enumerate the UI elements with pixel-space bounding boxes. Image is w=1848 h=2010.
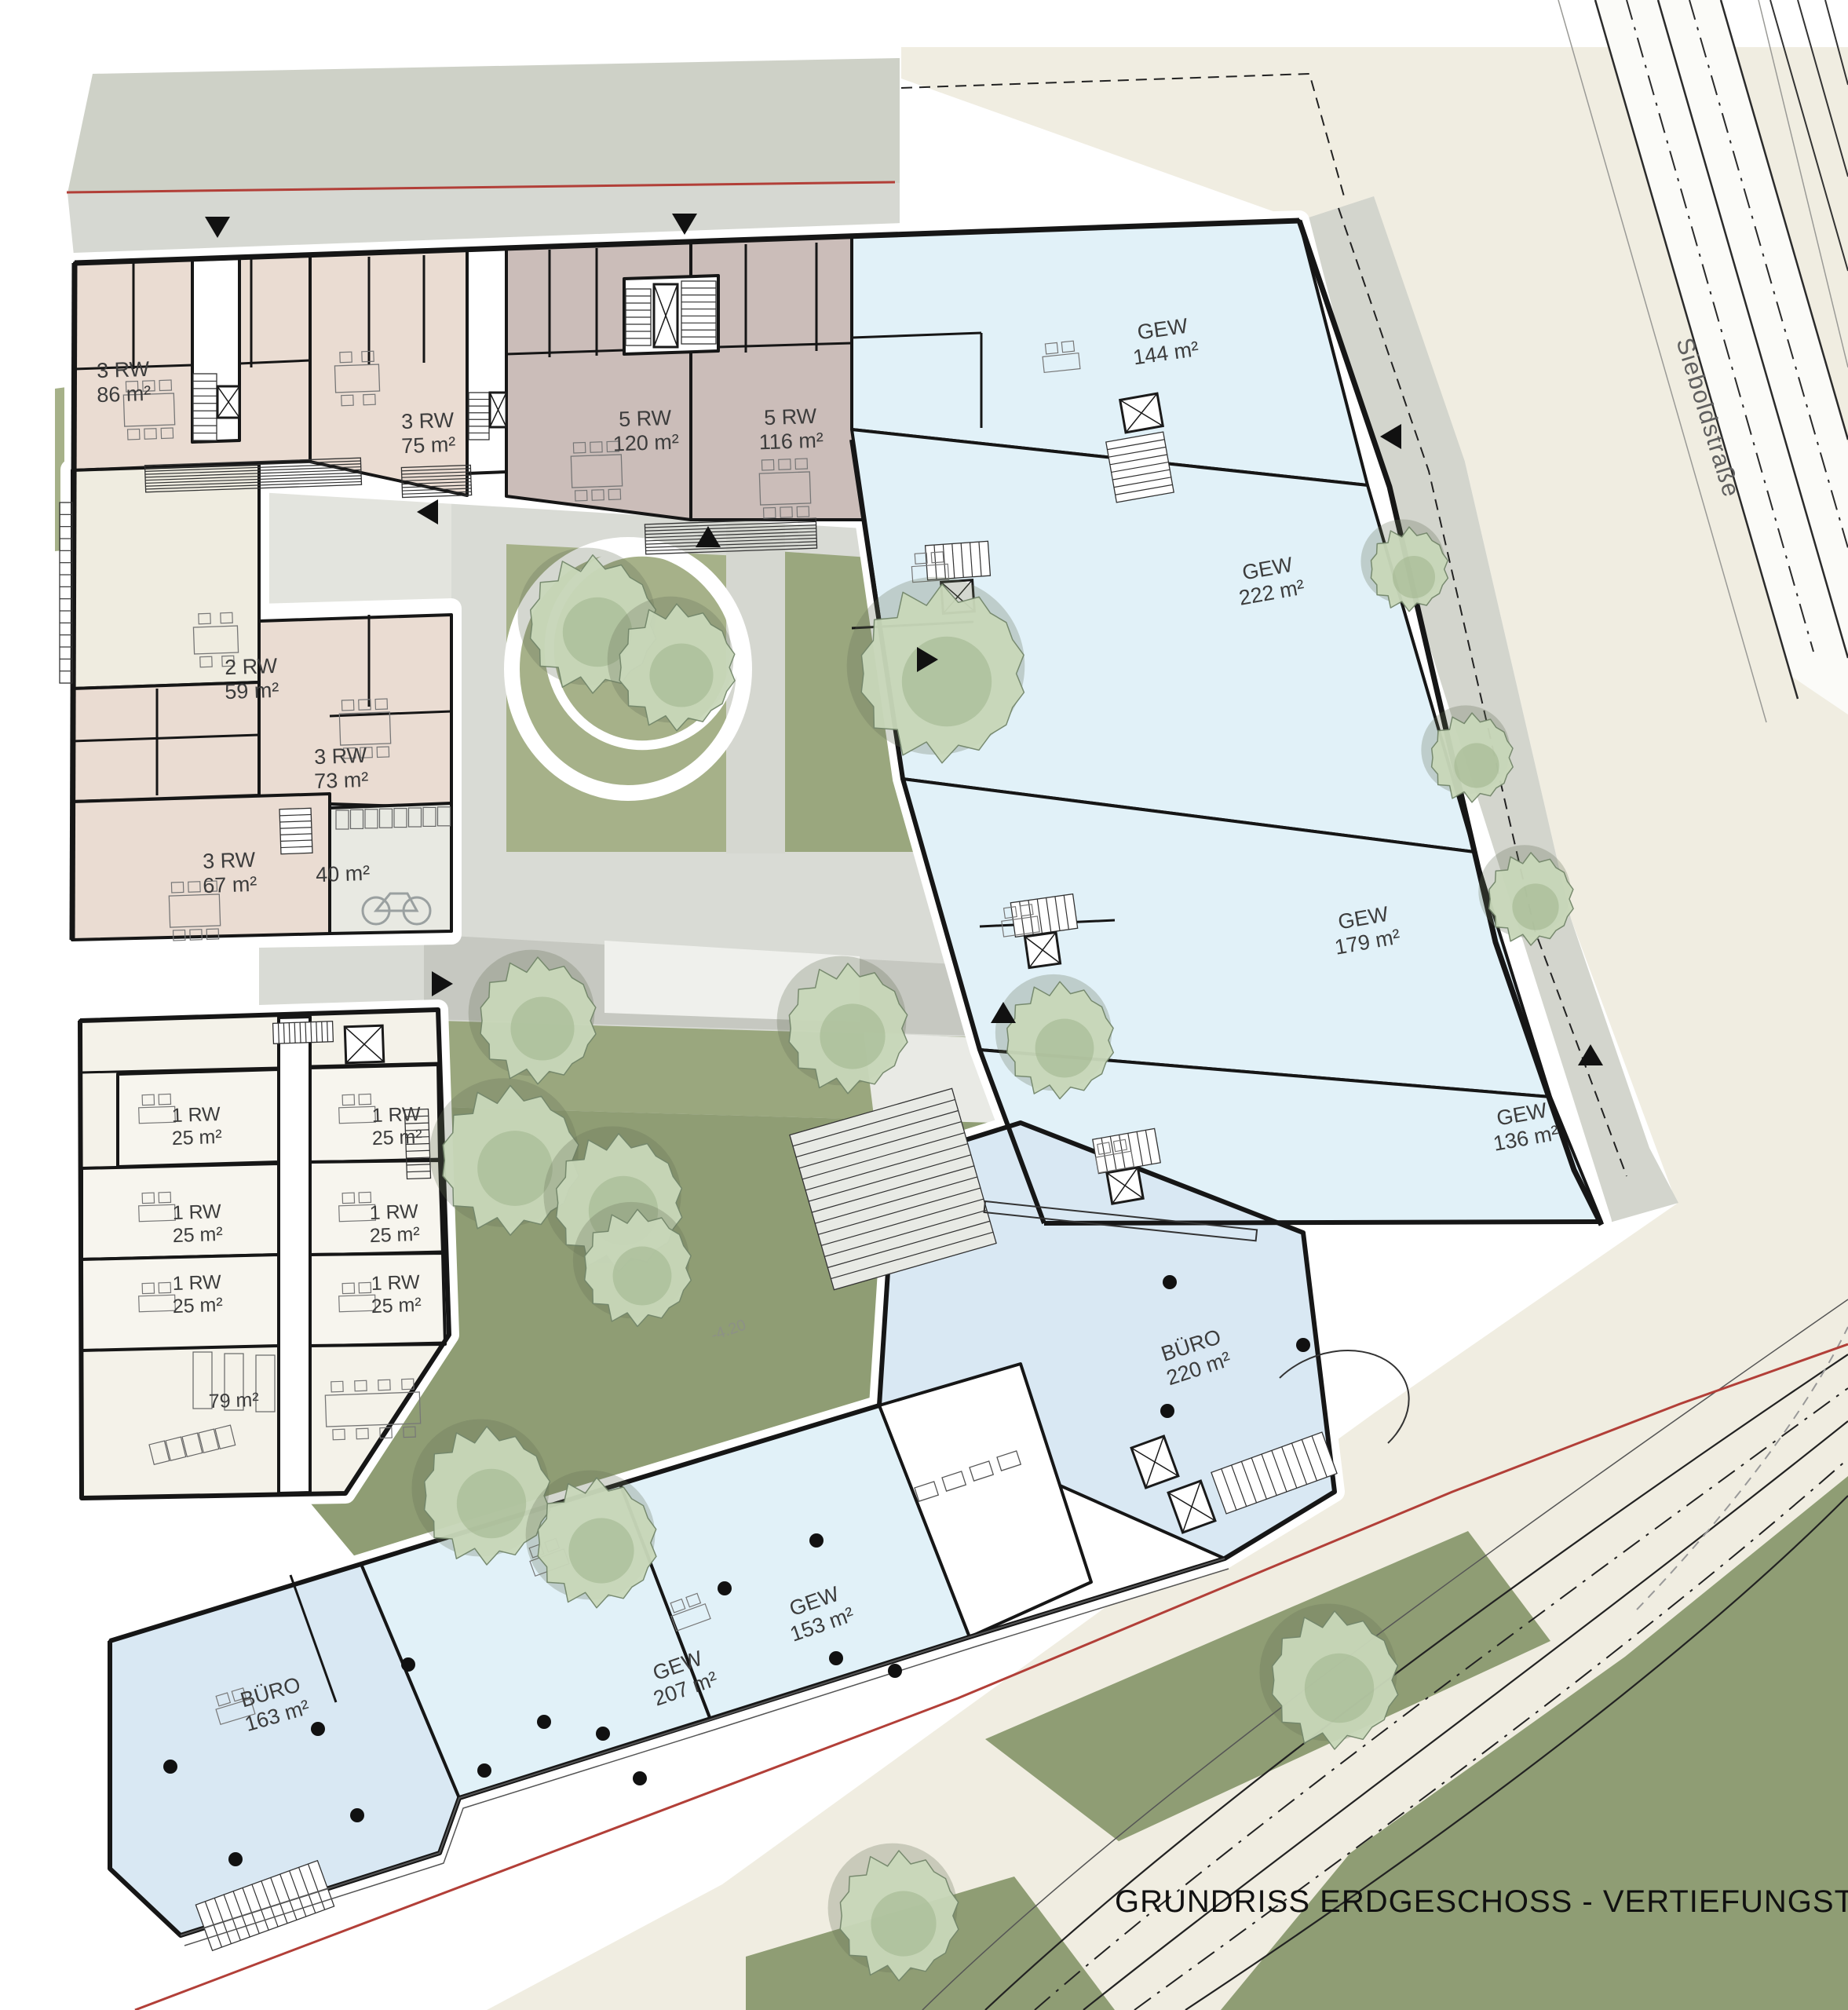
room-label: 1 RW25 m² (370, 1271, 422, 1317)
column (477, 1763, 491, 1778)
room-label: 79 m² (208, 1389, 259, 1412)
column (829, 1651, 843, 1665)
room-label: 40 m² (316, 861, 371, 886)
column (228, 1852, 243, 1866)
stair-east-1 (1106, 432, 1174, 502)
sw-corridor (279, 1017, 310, 1493)
column (401, 1657, 415, 1672)
stair-sw-top (273, 1021, 334, 1044)
room-label: 3 RW67 m² (202, 848, 257, 897)
column (1163, 1275, 1177, 1289)
column (537, 1715, 551, 1729)
column (888, 1664, 902, 1678)
floor-plan-canvas: 3 RW86 m²3 RW75 m²5 RW120 m²5 RW116 m²GE… (0, 0, 1848, 2010)
room-label: 2 RW59 m² (224, 654, 279, 703)
stair-n2b (681, 281, 716, 344)
room-label: 5 RW120 m² (612, 406, 679, 456)
elev-n1b (490, 393, 506, 427)
room-label: 1 RW25 m² (171, 1271, 223, 1317)
column (809, 1533, 824, 1548)
room-label: 1 RW25 m² (368, 1201, 420, 1247)
room-label: 1 RW25 m² (170, 1103, 222, 1149)
column (1296, 1338, 1310, 1352)
drawing-title: GRUNDRISS ERDGESCHOSS - VERTIEFUNGSTEIL … (1115, 1884, 1848, 1920)
street-top-upper (68, 58, 900, 193)
path-vertical (726, 510, 785, 853)
room-label: 5 RW116 m² (758, 404, 824, 455)
room-label: 1 RW25 m² (371, 1103, 422, 1149)
stair-east-2 (926, 541, 991, 579)
elev-sw (345, 1025, 384, 1063)
column (718, 1581, 732, 1595)
column (350, 1808, 364, 1822)
elev-n1 (217, 386, 239, 418)
stair-n1b (469, 393, 489, 440)
stair-n2a (626, 289, 651, 345)
column (1160, 1404, 1174, 1418)
column (633, 1771, 647, 1785)
elev-n2 (654, 284, 677, 347)
column (596, 1727, 610, 1741)
elev-e4 (1107, 1168, 1143, 1204)
room-label: 3 RW73 m² (313, 744, 369, 793)
stair-n1 (193, 374, 217, 440)
column (311, 1722, 325, 1736)
room-label: 1 RW25 m² (171, 1201, 223, 1247)
room-label: 3 RW86 m² (96, 357, 152, 407)
elev-e1 (1120, 393, 1163, 433)
stair-west (279, 808, 312, 853)
floor-plan-svg: 3 RW86 m²3 RW75 m²5 RW120 m²5 RW116 m²GE… (0, 0, 1848, 2010)
room-label: 3 RW75 m² (400, 408, 456, 458)
column (163, 1760, 177, 1774)
elev-e3 (1024, 932, 1060, 967)
